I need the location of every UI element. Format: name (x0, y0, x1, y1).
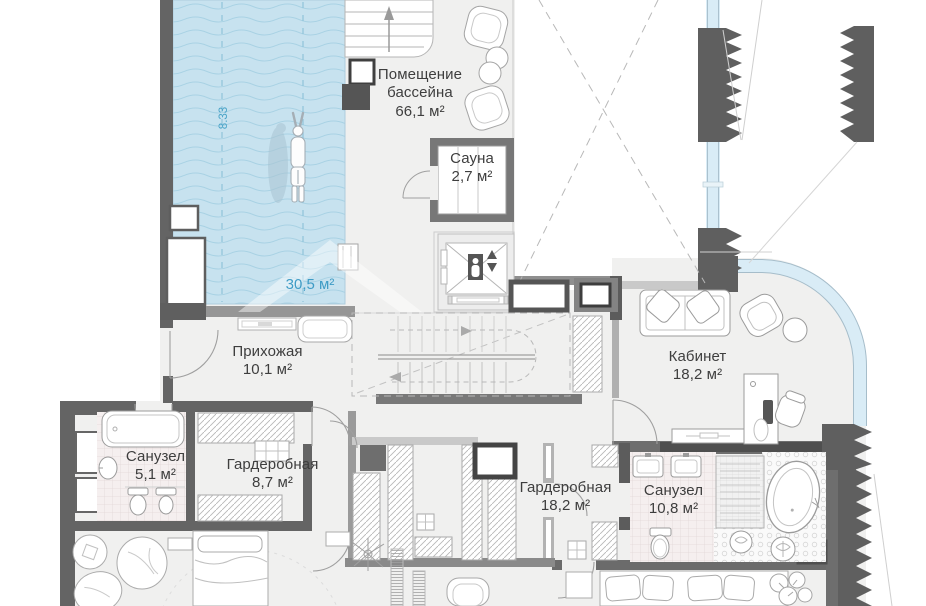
bathtub (102, 411, 184, 447)
room-label-pool: Помещение бассейна 66,1 м² (365, 66, 475, 121)
toilet (128, 488, 148, 515)
room-name: Прихожая (232, 343, 302, 360)
bed (193, 531, 268, 606)
cabinet (672, 429, 744, 443)
lounge-chair (447, 578, 489, 606)
elevator-person-icon (468, 254, 483, 280)
room-label-bathroom-small: Санузел 5,1 м² (103, 448, 208, 485)
bedroom-right-furniture (566, 571, 812, 606)
radiator (413, 571, 425, 606)
room-area: 2,7 м² (432, 168, 512, 186)
room-name: Санузел (126, 448, 185, 465)
room-area: 66,1 м² (365, 103, 475, 121)
room-name: Гардеробная (520, 479, 612, 496)
room-name: Санузел (644, 482, 703, 499)
beanbag-chair (117, 537, 167, 589)
pool-length-label: 8.33 (218, 107, 230, 129)
pool-stairs (345, 0, 433, 57)
side-table (783, 318, 807, 342)
room-name: Помещение бассейна (378, 66, 462, 101)
room-label-bathroom-large: Санузел 10,8 м² (611, 482, 736, 519)
room-area: 8,7 м² (200, 474, 345, 492)
room-label-wardrobe-small: Гардеробная 8,7 м² (200, 456, 345, 493)
elevator (434, 232, 514, 312)
side-table-plant (73, 535, 107, 569)
room-area: 18,2 м² (630, 366, 765, 384)
room-area: 5,1 м² (103, 466, 208, 484)
bedside-table (168, 538, 192, 550)
plant-icon (730, 531, 752, 553)
room-name: Кабинет (669, 348, 727, 365)
room-label-hallway: Прихожая 10,1 м² (195, 343, 340, 380)
sofa (640, 288, 730, 336)
void-markers (517, 0, 705, 287)
floor-plan: 8.33 30,5 м² Помещение бассейна 66,1 м² … (0, 0, 926, 606)
room-name: Гардеробная (227, 456, 319, 473)
room-area: 10,1 м² (195, 361, 340, 379)
bench (326, 532, 350, 546)
nightstand (566, 572, 592, 598)
room-name: Сауна (450, 150, 494, 167)
room-label-sauna: Сауна 2,7 м² (432, 150, 512, 187)
pool-area-label: 30,5 м² (286, 276, 335, 293)
bed (600, 571, 788, 606)
room-label-office: Кабинет 18,2 м² (630, 348, 765, 385)
room-area: 10,8 м² (611, 500, 736, 518)
radiator (391, 549, 403, 606)
